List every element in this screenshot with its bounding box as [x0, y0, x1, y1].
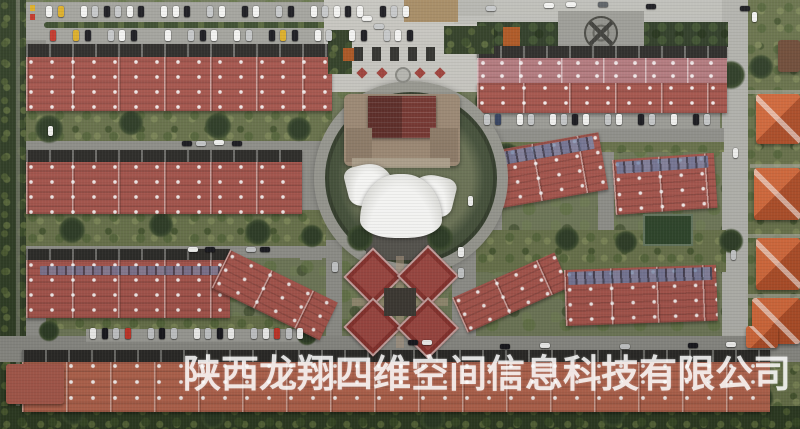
- rooftop-hut: [503, 27, 520, 46]
- apartment-roof-lower: [477, 83, 727, 113]
- car: [731, 250, 736, 260]
- tree-cluster: [118, 110, 144, 136]
- parked-car: [349, 30, 355, 41]
- car: [486, 6, 496, 11]
- parked-car: [361, 30, 367, 41]
- parked-car: [671, 114, 677, 125]
- parked-car: [108, 30, 114, 41]
- parked-car: [288, 6, 294, 17]
- aerial-photo: 陕西龙翔四维空间信息科技有限公司: [0, 0, 800, 429]
- parked-car: [326, 30, 332, 41]
- parked-car: [315, 30, 321, 41]
- pavilion-house: [6, 364, 64, 404]
- parked-car: [550, 114, 556, 125]
- parked-car: [391, 6, 397, 17]
- car: [246, 247, 256, 252]
- car: [232, 141, 242, 146]
- parked-car: [380, 6, 386, 17]
- plaza-hedge-right: [444, 26, 494, 54]
- car: [332, 262, 338, 272]
- parked-car: [205, 328, 211, 339]
- right-path: [748, 90, 800, 94]
- parked-car: [104, 6, 110, 17]
- townhouse-row3-solar: [40, 266, 220, 275]
- car: [458, 247, 464, 257]
- parked-car: [384, 30, 390, 41]
- parked-car: [561, 114, 567, 125]
- parked-car: [228, 328, 234, 339]
- parked-car: [90, 328, 96, 339]
- car: [182, 141, 192, 146]
- car: [566, 2, 576, 7]
- car: [458, 268, 464, 278]
- parked-car: [357, 6, 363, 17]
- tree-cluster: [554, 226, 580, 252]
- villa: [756, 238, 800, 290]
- parked-car: [517, 114, 523, 125]
- parked-car: [704, 114, 710, 125]
- right-path: [746, 294, 800, 298]
- parked-car: [119, 30, 125, 41]
- car: [500, 344, 510, 349]
- helipad-circle: [584, 16, 618, 50]
- car: [374, 24, 384, 29]
- car: [726, 342, 736, 347]
- plaza-building-tan: [404, 0, 458, 22]
- parked-car: [649, 114, 655, 125]
- tree-cluster: [38, 320, 60, 342]
- parked-car: [85, 30, 91, 41]
- moped-yellow: [30, 5, 35, 11]
- parked-car: [605, 114, 611, 125]
- parked-car: [165, 30, 171, 41]
- carport-row3: [26, 249, 230, 260]
- parked-car: [125, 328, 131, 339]
- car: [48, 126, 53, 136]
- parked-car: [102, 328, 108, 339]
- parked-car: [345, 6, 351, 17]
- parked-car: [274, 328, 280, 339]
- parked-car: [528, 114, 534, 125]
- parked-car: [334, 6, 340, 17]
- parked-car: [286, 328, 292, 339]
- parked-car: [280, 30, 286, 41]
- carport-row1: [26, 44, 332, 57]
- clubhouse-wing-right: [430, 128, 458, 162]
- car: [408, 340, 418, 345]
- tree-cluster: [244, 218, 272, 246]
- apartment-roof-upper: [477, 58, 727, 84]
- parked-car: [81, 6, 87, 17]
- roof-garden-right: [640, 22, 728, 47]
- car: [422, 340, 432, 345]
- parked-car: [253, 6, 259, 17]
- parked-car: [322, 6, 328, 17]
- parked-car: [246, 30, 252, 41]
- parked-car: [184, 6, 190, 17]
- tree-cluster: [748, 54, 774, 80]
- moped-red: [30, 14, 35, 20]
- parked-car: [242, 6, 248, 17]
- parked-car: [138, 6, 144, 17]
- parked-car: [484, 114, 490, 125]
- parked-car: [403, 6, 409, 17]
- parked-car: [188, 30, 194, 41]
- car: [688, 343, 698, 348]
- parked-car: [693, 114, 699, 125]
- watermark-text: 陕西龙翔四维空间信息科技有限公司: [183, 352, 791, 396]
- tree-cluster: [148, 212, 174, 238]
- tree-cluster: [204, 112, 232, 140]
- kg-road-left: [326, 240, 342, 342]
- parked-car: [148, 328, 154, 339]
- parked-car: [50, 30, 56, 41]
- tree-cluster: [58, 216, 86, 244]
- sports-court: [643, 214, 693, 246]
- parked-car: [407, 30, 413, 41]
- parked-car: [616, 114, 622, 125]
- mid-right-parking: [480, 111, 720, 129]
- paving-medallion: [395, 67, 411, 83]
- car: [214, 140, 224, 145]
- car: [620, 344, 630, 349]
- parked-car: [297, 328, 303, 339]
- parked-car: [292, 30, 298, 41]
- parked-car: [276, 6, 282, 17]
- car: [598, 2, 608, 7]
- parked-car: [159, 328, 165, 339]
- clubhouse-wing-left: [346, 128, 372, 162]
- parked-car: [173, 6, 179, 17]
- apartment-eave-strip: [477, 46, 727, 58]
- parked-car: [583, 114, 589, 125]
- townhouse-row1: [26, 57, 332, 111]
- tree-cluster: [300, 224, 324, 248]
- parked-car: [58, 6, 64, 17]
- villa: [746, 326, 778, 348]
- right-path: [750, 164, 800, 168]
- carport-row2: [26, 150, 302, 162]
- parked-car: [113, 328, 119, 339]
- villa: [754, 168, 800, 220]
- parked-car: [211, 30, 217, 41]
- parked-car: [46, 6, 52, 17]
- parked-car: [115, 6, 121, 17]
- car: [196, 141, 206, 146]
- parked-car: [219, 6, 225, 17]
- car: [362, 16, 372, 21]
- right-path: [748, 234, 800, 238]
- parked-car: [395, 30, 401, 41]
- parked-car: [234, 30, 240, 41]
- villa: [756, 94, 800, 144]
- car: [733, 148, 738, 158]
- parked-car: [131, 30, 137, 41]
- parked-car: [572, 114, 578, 125]
- parked-car: [269, 30, 275, 41]
- brown-house: [778, 40, 800, 72]
- car: [468, 196, 473, 206]
- parked-car: [200, 30, 206, 41]
- car: [752, 12, 757, 22]
- car: [646, 4, 656, 9]
- parked-car: [638, 114, 644, 125]
- parked-car: [73, 30, 79, 41]
- townhouse-row2: [26, 162, 302, 214]
- parked-car: [194, 328, 200, 339]
- parked-car: [171, 328, 177, 339]
- parked-car: [311, 6, 317, 17]
- car: [188, 247, 198, 252]
- car: [740, 6, 750, 11]
- car: [260, 247, 270, 252]
- parked-car: [161, 6, 167, 17]
- tree-cluster: [614, 230, 638, 254]
- car: [205, 247, 215, 252]
- clubhouse-main-roof: [368, 96, 436, 138]
- parked-car: [263, 328, 269, 339]
- pergola: [354, 47, 440, 61]
- parked-car: [207, 6, 213, 17]
- parked-car: [92, 6, 98, 17]
- parked-car: [495, 114, 501, 125]
- kindergarten-courtyard: [384, 288, 416, 316]
- parked-car: [127, 6, 133, 17]
- car: [540, 343, 550, 348]
- parked-car: [251, 328, 257, 339]
- car: [544, 3, 554, 8]
- parked-car: [217, 328, 223, 339]
- tree-cluster: [286, 116, 312, 142]
